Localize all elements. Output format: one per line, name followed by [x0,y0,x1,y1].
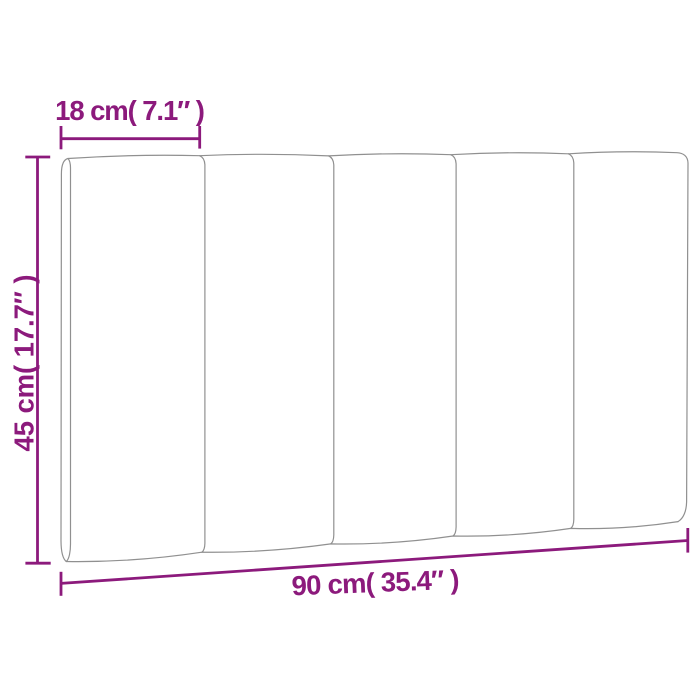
svg-text:18 cm( 7.1″ ): 18 cm( 7.1″ ) [55,95,204,126]
svg-text:45 cm( 17.7″ ): 45 cm( 17.7″ ) [9,275,40,452]
svg-text:90 cm( 35.4″ ): 90 cm( 35.4″ ) [291,564,459,602]
